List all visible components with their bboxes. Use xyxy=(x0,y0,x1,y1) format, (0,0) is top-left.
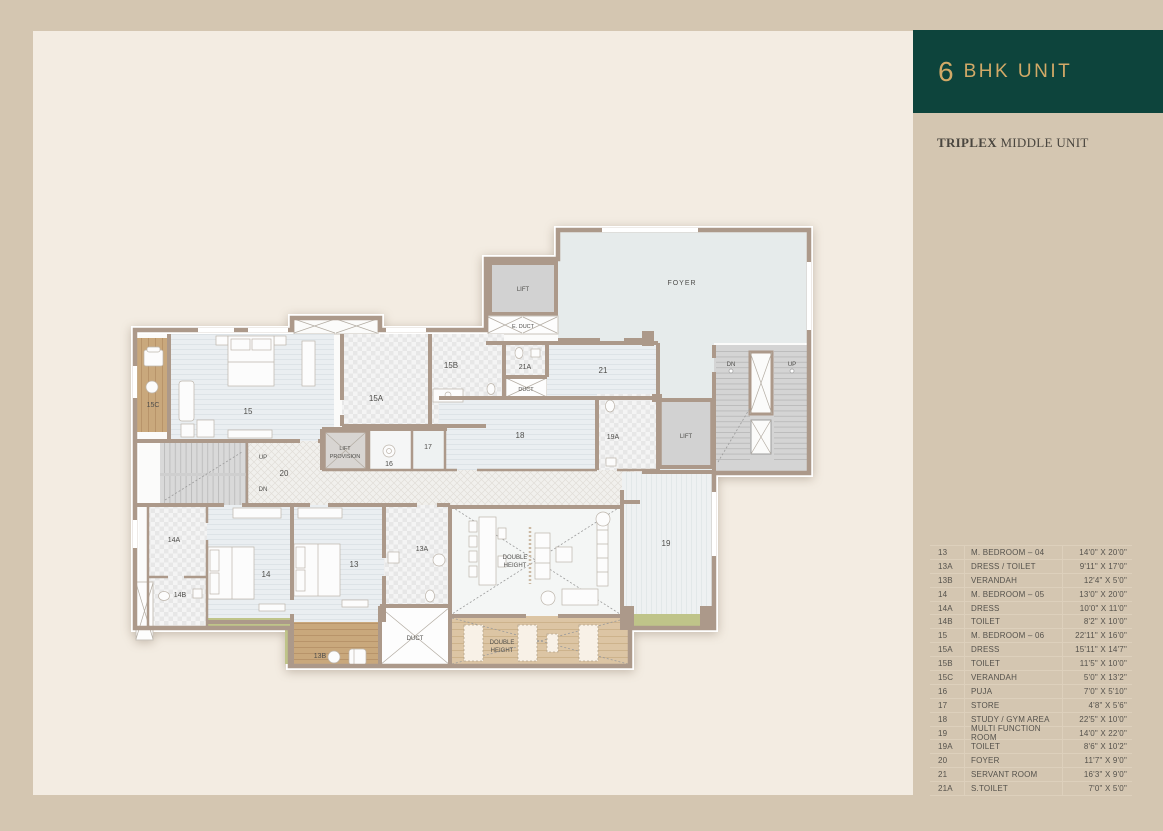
legend-row: 19A TOILET 8'6" X 10'2" xyxy=(930,740,1132,754)
floor-plan: FOYER LIFT E. DUCT 21A DUCT 21 DN UP 15 … xyxy=(125,218,817,690)
legend-room-name: M. BEDROOM – 04 xyxy=(964,546,1062,559)
legend-row: 13A DRESS / TOILET 9'11" X 17'0" xyxy=(930,560,1132,574)
label-lift-right: LIFT xyxy=(680,434,693,440)
legend-row: 15 M. BEDROOM – 06 22'11" X 16'0" xyxy=(930,629,1132,643)
label-lift-top: LIFT xyxy=(517,287,530,293)
legend-room-id: 19 xyxy=(930,729,964,738)
legend-room-name: VERANDAH xyxy=(964,574,1062,587)
legend-room-dimension: 13'0" X 20'0" xyxy=(1062,588,1132,601)
unit-title-banner: 6 BHK UNIT xyxy=(913,30,1163,113)
label-18: 18 xyxy=(516,431,525,440)
label-17: 17 xyxy=(424,444,432,451)
label-16: 16 xyxy=(385,461,393,468)
legend-row: 15B TOILET 11'5" X 10'0" xyxy=(930,657,1132,671)
legend-room-dimension: 7'0" X 5'10" xyxy=(1062,685,1132,698)
legend-room-name: TOILET xyxy=(964,740,1062,753)
legend-row: 13B VERANDAH 12'4" X 5'0" xyxy=(930,574,1132,588)
unit-subtitle-bold: TRIPLEX xyxy=(937,135,997,150)
legend-row: 19 MULTI FUNCTION ROOM 14'0" X 22'0" xyxy=(930,727,1132,741)
legend-room-dimension: 11'5" X 10'0" xyxy=(1062,657,1132,670)
unit-title: BHK UNIT xyxy=(964,61,1073,83)
legend-room-name: DRESS xyxy=(964,602,1062,615)
legend-room-dimension: 22'5" X 10'0" xyxy=(1062,713,1132,726)
legend-room-dimension: 12'4" X 5'0" xyxy=(1062,574,1132,587)
legend-room-dimension: 11'7" X 9'0" xyxy=(1062,754,1132,767)
legend-room-id: 16 xyxy=(930,687,964,696)
legend-room-dimension: 16'3" X 9'0" xyxy=(1062,768,1132,781)
label-20: 20 xyxy=(280,469,289,478)
label-19: 19 xyxy=(662,539,671,548)
legend-room-dimension: 10'0" X 11'0" xyxy=(1062,602,1132,615)
legend-room-name: STORE xyxy=(964,699,1062,712)
label-13b: 13B xyxy=(314,653,327,660)
legend-room-id: 15 xyxy=(930,631,964,640)
label-lift-provision-2: PROVISION xyxy=(330,454,361,460)
label-up-left: UP xyxy=(259,455,267,461)
legend-row: 14B TOILET 8'2" X 10'0" xyxy=(930,615,1132,629)
legend-room-id: 15A xyxy=(930,645,964,654)
label-dn-right: DN xyxy=(727,362,736,368)
legend-room-id: 20 xyxy=(930,756,964,765)
legend-table: 13 M. BEDROOM – 04 14'0" X 20'0" 13A DRE… xyxy=(930,545,1132,796)
legend-row: 14 M. BEDROOM – 05 13'0" X 20'0" xyxy=(930,588,1132,602)
label-up-right: UP xyxy=(788,362,796,368)
legend-room-id: 21 xyxy=(930,770,964,779)
legend-room-name: FOYER xyxy=(964,754,1062,767)
room-fills xyxy=(136,230,809,666)
legend-room-dimension: 7'0" X 5'0" xyxy=(1062,782,1132,795)
legend-room-id: 18 xyxy=(930,715,964,724)
legend-room-dimension: 8'6" X 10'2" xyxy=(1062,740,1132,753)
legend-room-dimension: 9'11" X 17'0" xyxy=(1062,560,1132,573)
legend-room-name: DRESS xyxy=(964,643,1062,656)
label-13a: 13A xyxy=(416,546,429,553)
legend-room-dimension: 8'2" X 10'0" xyxy=(1062,615,1132,628)
label-height-terrace: HEIGHT xyxy=(491,648,514,654)
legend-room-id: 21A xyxy=(930,784,964,793)
label-height-living: HEIGHT xyxy=(504,563,527,569)
legend-row: 21 SERVANT ROOM 16'3" X 9'0" xyxy=(930,768,1132,782)
room-14b-toilet xyxy=(150,577,210,628)
legend-room-name: TOILET xyxy=(964,615,1062,628)
top-duct-shaft xyxy=(294,318,378,334)
label-14: 14 xyxy=(262,570,271,579)
label-duct-21: DUCT xyxy=(518,387,534,393)
label-15c: 15C xyxy=(147,402,160,409)
legend-room-name: M. BEDROOM – 06 xyxy=(964,629,1062,642)
legend-room-id: 14 xyxy=(930,590,964,599)
label-double-living: DOUBLE xyxy=(503,555,528,561)
legend-room-id: 14A xyxy=(930,604,964,613)
label-lift-provision-1: LIFT xyxy=(339,446,351,452)
label-duct-bottom: DUCT xyxy=(407,636,424,642)
legend-room-dimension: 5'0" X 13'2" xyxy=(1062,671,1132,684)
legend-room-id: 13B xyxy=(930,576,964,585)
legend-room-dimension: 14'0" X 20'0" xyxy=(1062,546,1132,559)
legend-room-id: 15B xyxy=(930,659,964,668)
legend-room-dimension: 15'11" X 14'7" xyxy=(1062,643,1132,656)
legend-row: 15C VERANDAH 5'0" X 13'2" xyxy=(930,671,1132,685)
green-strip-right xyxy=(626,614,710,626)
label-dn-left: DN xyxy=(259,487,268,493)
label-14b: 14B xyxy=(174,592,187,599)
legend-row: 13 M. BEDROOM – 04 14'0" X 20'0" xyxy=(930,545,1132,560)
legend-room-name: S.TOILET xyxy=(964,782,1062,795)
label-19a: 19A xyxy=(607,434,620,441)
legend-room-name: MULTI FUNCTION ROOM xyxy=(964,727,1062,740)
legend-room-dimension: 14'0" X 22'0" xyxy=(1062,727,1132,740)
page: { "sidebar": { "header": { "number": "6"… xyxy=(0,0,1163,831)
label-14a: 14A xyxy=(168,537,181,544)
legend-room-name: PUJA xyxy=(964,685,1062,698)
legend-room-id: 19A xyxy=(930,742,964,751)
label-13: 13 xyxy=(350,560,359,569)
unit-subtitle: TRIPLEX MIDDLE UNIT xyxy=(937,135,1157,151)
legend-room-dimension: 22'11" X 16'0" xyxy=(1062,629,1132,642)
legend-row: 21A S.TOILET 7'0" X 5'0" xyxy=(930,782,1132,796)
room-21a-toilet xyxy=(504,343,547,377)
label-21a: 21A xyxy=(519,364,532,371)
legend-room-name: TOILET xyxy=(964,657,1062,670)
label-21: 21 xyxy=(599,366,608,375)
legend-room-id: 13 xyxy=(930,548,964,557)
label-15a: 15A xyxy=(369,394,384,403)
legend-room-name: DRESS / TOILET xyxy=(964,560,1062,573)
unit-number: 6 xyxy=(938,56,955,88)
legend-row: 16 PUJA 7'0" X 5'10" xyxy=(930,685,1132,699)
label-15: 15 xyxy=(244,407,253,416)
legend-row: 17 STORE 4'8" X 5'6" xyxy=(930,699,1132,713)
legend-room-name: M. BEDROOM – 05 xyxy=(964,588,1062,601)
legend-row: 14A DRESS 10'0" X 11'0" xyxy=(930,602,1132,616)
label-15b: 15B xyxy=(444,361,458,370)
legend-room-id: 15C xyxy=(930,673,964,682)
legend-room-name: SERVANT ROOM xyxy=(964,768,1062,781)
legend-room-id: 17 xyxy=(930,701,964,710)
label-foyer: FOYER xyxy=(667,280,696,287)
legend-row: 15A DRESS 15'11" X 14'7" xyxy=(930,643,1132,657)
legend-room-id: 13A xyxy=(930,562,964,571)
legend-room-dimension: 4'8" X 5'6" xyxy=(1062,699,1132,712)
legend-row: 20 FOYER 11'7" X 9'0" xyxy=(930,754,1132,768)
legend-room-id: 14B xyxy=(930,617,964,626)
unit-subtitle-rest: MIDDLE UNIT xyxy=(997,135,1089,150)
label-e-duct: E. DUCT xyxy=(512,324,535,330)
label-double-terrace: DOUBLE xyxy=(490,640,515,646)
legend-room-name: VERANDAH xyxy=(964,671,1062,684)
